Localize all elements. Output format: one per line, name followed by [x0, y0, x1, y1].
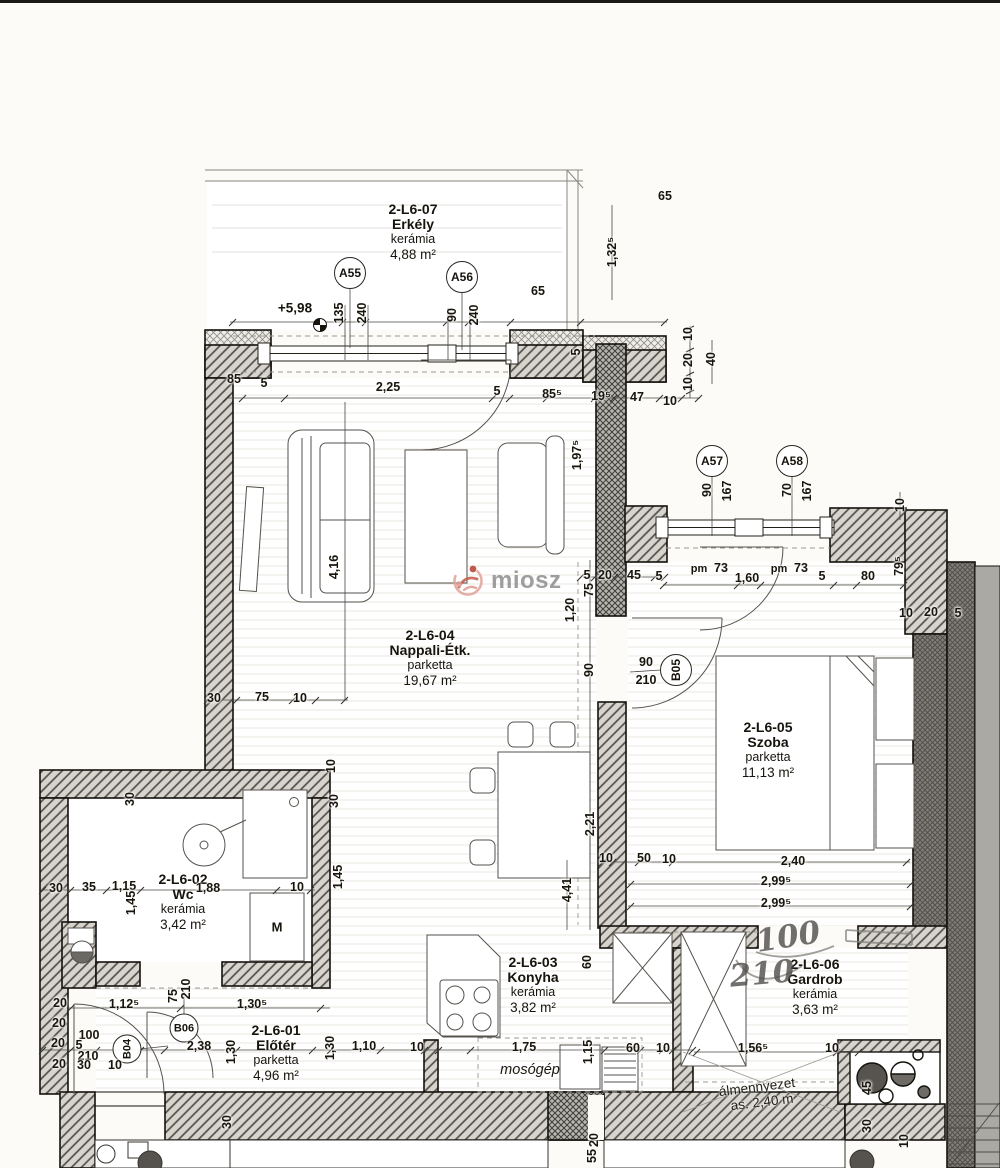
handwritten-door-height: 210: [728, 953, 796, 995]
room-label-erkely: 2-L6-07 Erkély kerámia 4,88 m²: [388, 202, 437, 262]
room-area: 4,88 m²: [388, 247, 437, 262]
room-id: 2-L6-07: [388, 202, 437, 217]
room-finish: kerámia: [787, 987, 842, 1002]
watermark-logo-icon: [450, 563, 486, 599]
room-finish: parketta: [742, 750, 794, 765]
room-finish: kerámia: [388, 232, 437, 247]
dim-label: 70: [780, 483, 794, 497]
dim-label: 80: [861, 569, 875, 583]
dim-label: 1,56⁵: [738, 1041, 768, 1055]
dim-label: 2,99⁵: [761, 874, 791, 888]
room-finish: parketta: [251, 1053, 300, 1068]
dim-label: 75: [166, 989, 180, 1003]
dim-label: 79⁵: [892, 556, 906, 576]
dim-label: 5: [261, 376, 268, 390]
dim-label: 10: [681, 327, 695, 341]
nightstand: [876, 764, 914, 848]
dim-label: 2,25: [376, 380, 400, 394]
dim-label: 10: [681, 377, 695, 391]
dim-label: 50: [637, 851, 651, 865]
dim-label: 30: [327, 794, 341, 808]
dim-label: 10: [899, 606, 913, 620]
dim-label: 85: [227, 372, 241, 386]
dim-label: 30: [123, 792, 137, 806]
marker-B05: B05: [660, 654, 692, 686]
floor-plan: miosz 2-L6-07 Erkély kerámia 4,88 m² 2-L…: [0, 0, 1000, 1168]
dim-label: 2,40: [781, 854, 805, 868]
dim-label: 10: [656, 1041, 670, 1055]
dining-table: [498, 752, 590, 878]
dim-label: 45: [627, 568, 641, 582]
dim-label: 20: [53, 996, 67, 1010]
dim-label: 20: [51, 1036, 65, 1050]
dim-label: 5: [494, 384, 501, 398]
dim-label: 20: [587, 1133, 601, 1147]
dim-label: 75: [255, 690, 269, 704]
dim-label: 40: [704, 352, 718, 366]
dim-label: 240: [467, 305, 481, 326]
dim-label: 210: [179, 979, 193, 1000]
room-name: Szoba: [742, 735, 794, 750]
dim-label: 5: [955, 606, 962, 620]
dim-label: pm: [691, 563, 708, 575]
dim-label: 5: [819, 569, 826, 583]
dim-label: 1,12⁵: [109, 997, 139, 1011]
dim-label: 1,15: [581, 1040, 595, 1064]
dim-label: 1,60: [735, 571, 759, 585]
dim-label: 10: [893, 498, 907, 512]
watermark: miosz: [450, 563, 562, 599]
room-area: 4,96 m²: [251, 1068, 300, 1083]
dim-label: 90: [639, 655, 653, 669]
dim-label: 75: [582, 583, 596, 597]
dim-label: 1,30: [224, 1040, 238, 1064]
dim-label: 10: [293, 691, 307, 705]
room-area: 3,42 m²: [158, 917, 207, 932]
dim-label: 20: [52, 1057, 66, 1071]
room-name: Nappali-Étk.: [390, 643, 471, 658]
dim-label: 2,21: [583, 812, 597, 836]
dim-label: 30: [860, 1119, 874, 1133]
room-label-nappali: 2-L6-04 Nappali-Étk. parketta 19,67 m²: [390, 628, 471, 688]
armchair: [498, 443, 548, 547]
dim-label: 10: [410, 1040, 424, 1054]
dim-label: 10: [897, 1134, 911, 1148]
level-marker-icon: [314, 319, 327, 332]
dim-label: 35: [82, 880, 96, 894]
nightstand: [876, 658, 914, 740]
dim-label: 167: [720, 481, 734, 502]
watermark-text: miosz: [491, 567, 562, 595]
dim-label: 90: [700, 483, 714, 497]
dim-label: 10: [108, 1058, 122, 1072]
dim-label: 1,75: [512, 1040, 536, 1054]
dim-label: 1,10: [352, 1039, 376, 1053]
dim-label: 167: [800, 481, 814, 502]
room-label-konyha: 2-L6-03 Konyha kerámia 3,82 m²: [507, 955, 558, 1015]
dim-label: 135: [332, 303, 346, 324]
dim-label: 10: [599, 851, 613, 865]
dim-label: 4,16: [327, 555, 341, 579]
dim-label: 30: [77, 1058, 91, 1072]
dim-label: 20: [924, 605, 938, 619]
dim-label: 19⁵: [591, 389, 611, 403]
dim-label: 4,41: [560, 878, 574, 902]
dim-label: 30: [220, 1115, 234, 1129]
room-id: 2-L6-06: [787, 957, 842, 972]
room-finish: kerámia: [158, 902, 207, 917]
room-area: 19,67 m²: [390, 673, 471, 688]
dim-label: 1,20: [563, 598, 577, 622]
dim-label: 1,88: [196, 881, 220, 895]
dim-label: 1,30: [323, 1036, 337, 1060]
dim-label: 10: [663, 394, 677, 408]
dim-label: 73: [714, 561, 728, 575]
room-label-szoba: 2-L6-05 Szoba parketta 11,13 m²: [742, 720, 794, 780]
dim-label: 210: [636, 673, 657, 687]
room-name: Előtér: [251, 1038, 300, 1053]
room-label-eloter: 2-L6-01 Előtér parketta 4,96 m²: [251, 1023, 300, 1083]
marker-A58: A58: [776, 445, 808, 477]
room-area: 3,82 m²: [507, 1000, 558, 1015]
room-id: 2-L6-05: [742, 720, 794, 735]
dim-label: 85⁵: [542, 387, 562, 401]
dim-label: pm: [771, 563, 788, 575]
room-finish: parketta: [390, 658, 471, 673]
dim-label: 65: [658, 189, 672, 203]
duct-shaft: [838, 1040, 940, 1104]
dim-label: 20: [52, 1016, 66, 1030]
dim-label: 30: [207, 691, 221, 705]
dim-label: 1,45: [124, 891, 138, 915]
level-label: +5,98: [278, 301, 312, 316]
dim-label: 10: [324, 759, 338, 773]
room-id: 2-L6-01: [251, 1023, 300, 1038]
room-id: 2-L6-03: [507, 955, 558, 970]
dim-label: 5: [569, 349, 583, 356]
room-name: Konyha: [507, 970, 558, 985]
marker-A56: A56: [446, 261, 478, 293]
dim-label: 20: [681, 353, 695, 367]
dim-label: 90: [445, 308, 459, 322]
dim-label: 45: [860, 1081, 874, 1095]
dim-label: 1,45: [331, 865, 345, 889]
dim-label: 2,99⁵: [761, 896, 791, 910]
dim-label: 2,38: [187, 1039, 211, 1053]
dim-label: 65: [531, 284, 545, 298]
dim-label: 20: [598, 568, 612, 582]
dim-label: 5: [584, 568, 591, 582]
room-name: Erkély: [388, 217, 437, 232]
room-area: 11,13 m²: [742, 765, 794, 780]
room-finish: kerámia: [507, 985, 558, 1000]
dim-label: 60: [580, 955, 594, 969]
dim-label: 55: [585, 1149, 599, 1163]
bed: [716, 656, 874, 850]
dim-label: 240: [355, 303, 369, 324]
room-id: 2-L6-04: [390, 628, 471, 643]
dim-label: 73: [794, 561, 808, 575]
dim-label: 10: [825, 1041, 839, 1055]
washer-note: mosógép: [500, 1062, 560, 1078]
marker-A55: A55: [334, 257, 366, 289]
neighbour-rooms: [95, 1140, 874, 1168]
dim-label: 10: [662, 852, 676, 866]
dim-label: 1,32⁵: [605, 237, 619, 267]
dim-label: 60: [626, 1041, 640, 1055]
dim-label: 30: [49, 881, 63, 895]
dim-label: 47: [630, 390, 644, 404]
dim-label: 5: [656, 569, 663, 583]
room-area: 3,63 m²: [787, 1002, 842, 1017]
washing-machine-label: M: [272, 920, 283, 935]
dim-label: 1,30⁵: [237, 997, 267, 1011]
marker-A57: A57: [696, 445, 728, 477]
dim-label: 1,97⁵: [570, 440, 584, 470]
dim-label: 10: [290, 880, 304, 894]
dim-label: 90: [582, 663, 596, 677]
